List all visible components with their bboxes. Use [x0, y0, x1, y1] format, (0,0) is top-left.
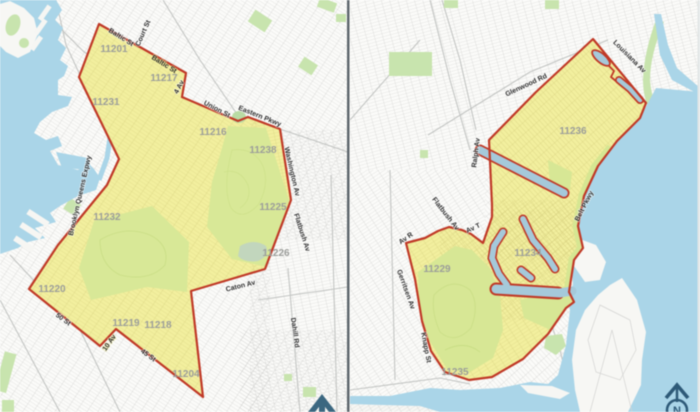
svg-text:11231: 11231 [92, 97, 120, 108]
svg-text:11226: 11226 [262, 248, 290, 259]
svg-text:11236: 11236 [559, 126, 587, 137]
svg-text:11232: 11232 [93, 212, 121, 223]
svg-text:N: N [673, 405, 681, 412]
svg-text:11235: 11235 [441, 367, 469, 378]
svg-text:11216: 11216 [199, 127, 227, 138]
svg-text:11219: 11219 [112, 318, 140, 329]
svg-text:11234: 11234 [514, 248, 542, 259]
svg-text:11218: 11218 [144, 320, 172, 331]
svg-text:11201: 11201 [100, 44, 128, 55]
svg-text:11229: 11229 [423, 264, 451, 275]
svg-text:11225: 11225 [259, 202, 287, 213]
svg-text:11238: 11238 [249, 145, 277, 156]
svg-text:11204: 11204 [172, 369, 200, 380]
svg-text:11220: 11220 [38, 284, 66, 295]
